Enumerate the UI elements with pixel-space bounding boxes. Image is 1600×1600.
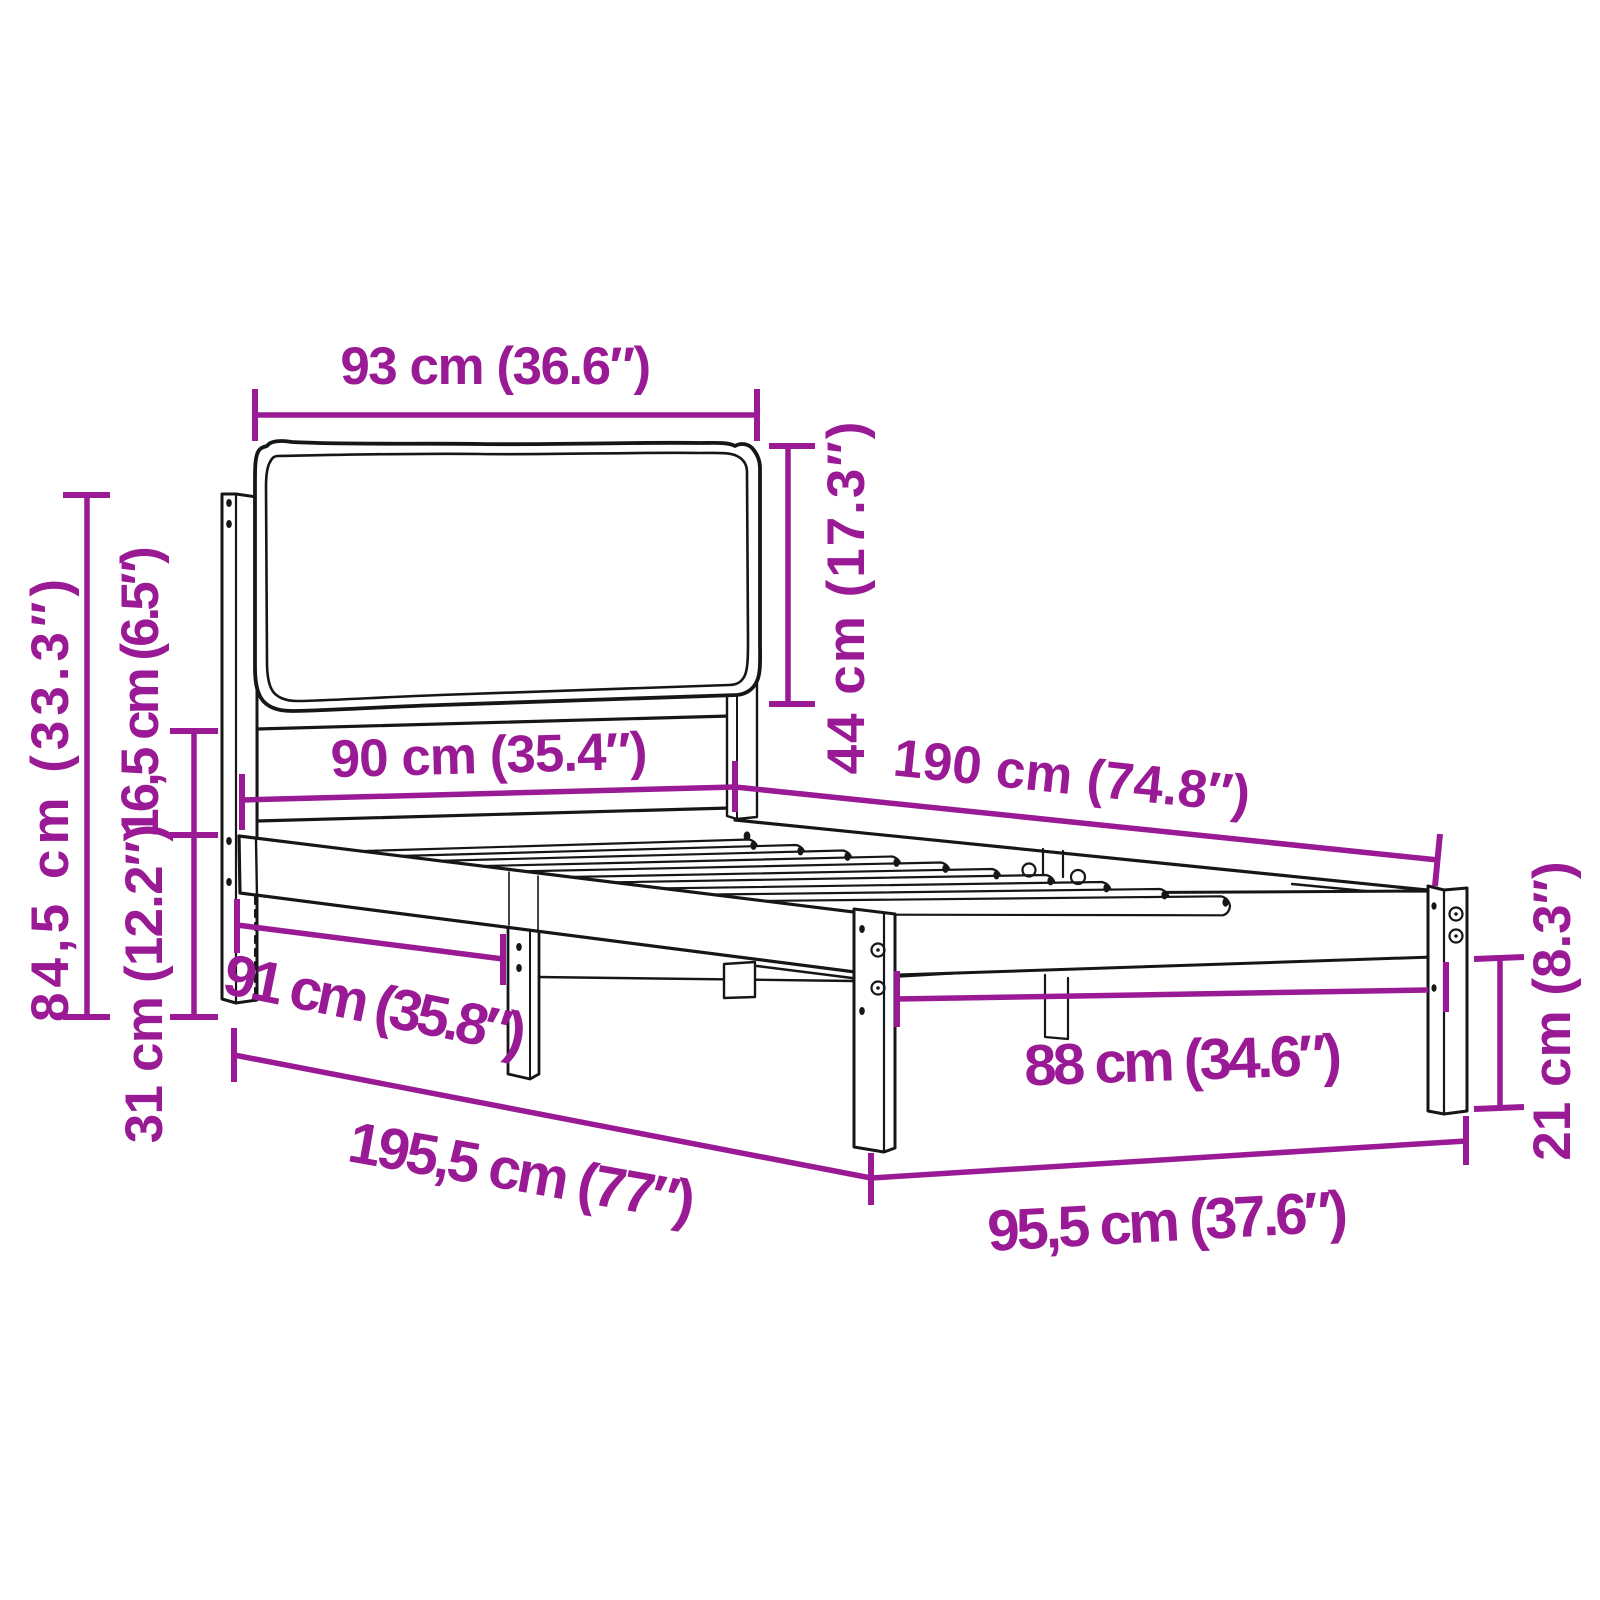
- svg-text:93 cm (36.6″): 93 cm (36.6″): [340, 337, 649, 396]
- svg-text:84,5 cm (33.3″): 84,5 cm (33.3″): [21, 574, 80, 1022]
- svg-text:31 cm (12.2″): 31 cm (12.2″): [115, 825, 174, 1143]
- svg-text:88 cm (34.6″): 88 cm (34.6″): [1023, 1023, 1341, 1099]
- svg-text:21 cm (8.3″): 21 cm (8.3″): [1523, 861, 1582, 1160]
- svg-text:90 cm (35.4″): 90 cm (35.4″): [330, 722, 647, 789]
- svg-text:44 cm (17.3″): 44 cm (17.3″): [817, 420, 876, 775]
- svg-text:16,5 cm (6.5″): 16,5 cm (6.5″): [111, 548, 170, 838]
